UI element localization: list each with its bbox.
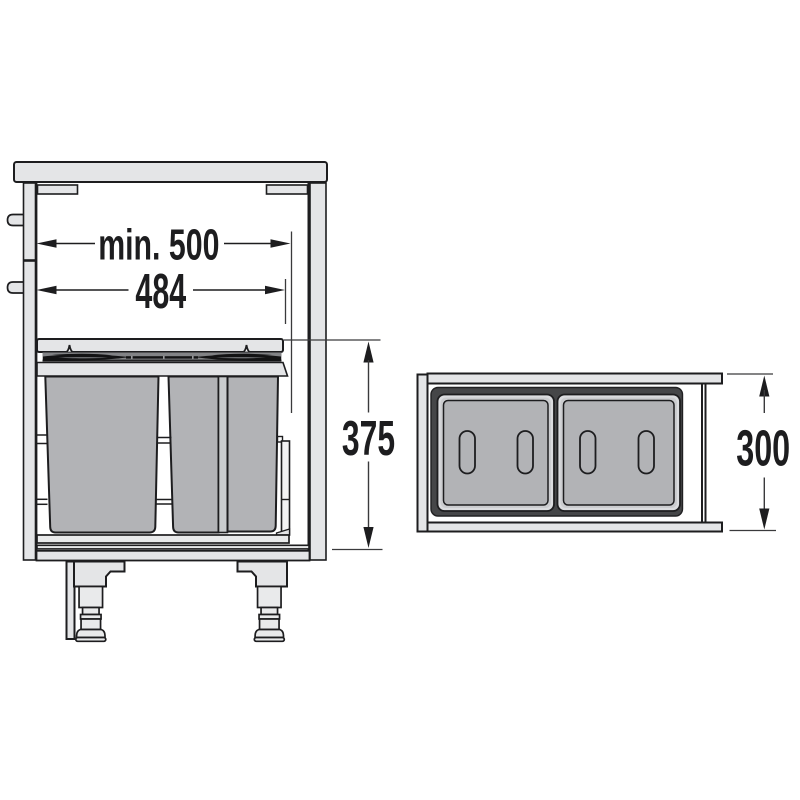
svg-text:375: 375 <box>342 410 395 466</box>
svg-text:484: 484 <box>135 264 186 319</box>
svg-text:min. 500: min. 500 <box>98 220 219 269</box>
svg-text:300: 300 <box>736 420 790 477</box>
